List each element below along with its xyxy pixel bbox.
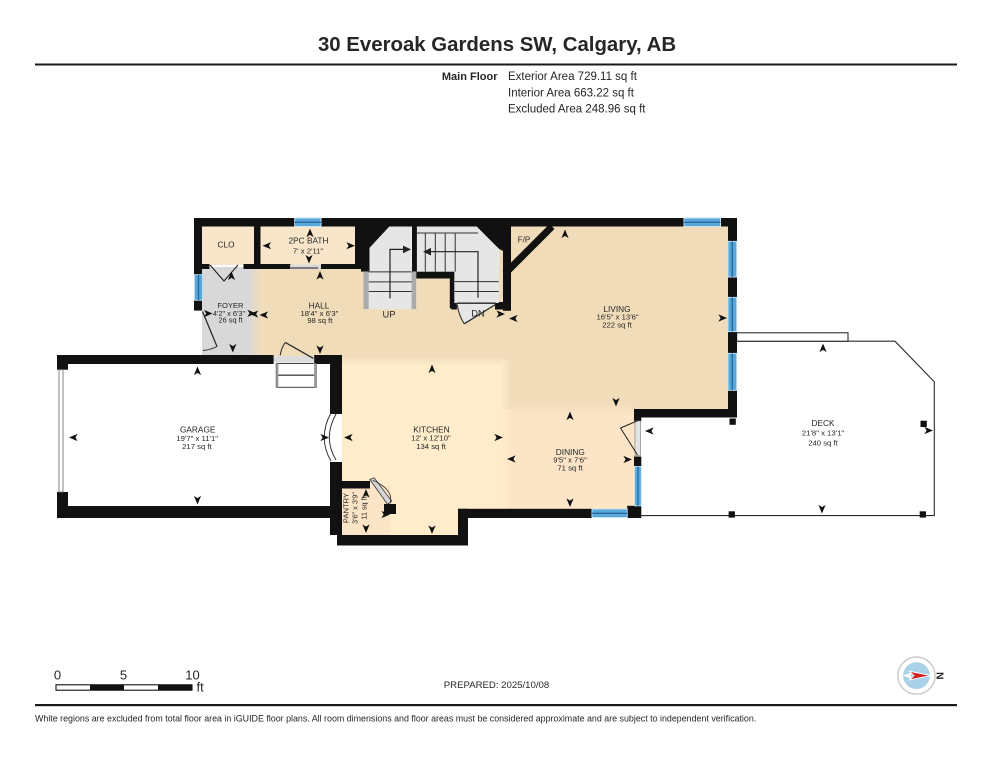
svg-text:DECK: DECK: [811, 418, 835, 428]
svg-text:Main Floor: Main Floor: [442, 71, 498, 83]
svg-text:Interior Area 663.22 sq ft: Interior Area 663.22 sq ft: [508, 88, 635, 100]
svg-text:217 sq ft: 217 sq ft: [182, 442, 212, 451]
svg-text:0: 0: [54, 668, 61, 683]
svg-text:134 sq ft: 134 sq ft: [416, 442, 446, 451]
svg-text:GARAGE: GARAGE: [180, 424, 216, 434]
svg-text:26 sq ft: 26 sq ft: [218, 316, 242, 325]
svg-text:5: 5: [120, 668, 127, 683]
svg-text:240 sq ft: 240 sq ft: [808, 439, 838, 448]
svg-text:F/P: F/P: [518, 236, 530, 245]
svg-text:21'8" x 13'1": 21'8" x 13'1": [802, 429, 844, 438]
svg-text:White regions are excluded fro: White regions are excluded from total fl…: [35, 714, 756, 724]
svg-text:DN: DN: [471, 309, 484, 319]
svg-text:30 Everoak Gardens SW, Calgary: 30 Everoak Gardens SW, Calgary, AB: [318, 34, 676, 56]
svg-text:Exterior Area 729.11 sq ft: Exterior Area 729.11 sq ft: [508, 71, 638, 83]
svg-text:Excluded Area 248.96 sq ft: Excluded Area 248.96 sq ft: [508, 104, 646, 116]
svg-text:2PC BATH: 2PC BATH: [289, 236, 329, 246]
svg-text:ft: ft: [197, 680, 205, 695]
svg-text:PANTRY: PANTRY: [342, 493, 351, 523]
svg-text:11 sq ft: 11 sq ft: [360, 496, 369, 519]
svg-text:CLO: CLO: [217, 239, 235, 249]
svg-text:UP: UP: [383, 310, 396, 320]
svg-text:N: N: [933, 672, 945, 680]
svg-text:7' x 2'11": 7' x 2'11": [293, 246, 324, 255]
svg-text:71 sq ft: 71 sq ft: [557, 463, 583, 472]
svg-text:PREPARED: 2025/10/08: PREPARED: 2025/10/08: [444, 680, 549, 691]
svg-text:98 sq ft: 98 sq ft: [307, 316, 333, 325]
svg-text:222 sq ft: 222 sq ft: [602, 320, 632, 329]
svg-text:3'6" x 3'9": 3'6" x 3'9": [351, 492, 360, 524]
